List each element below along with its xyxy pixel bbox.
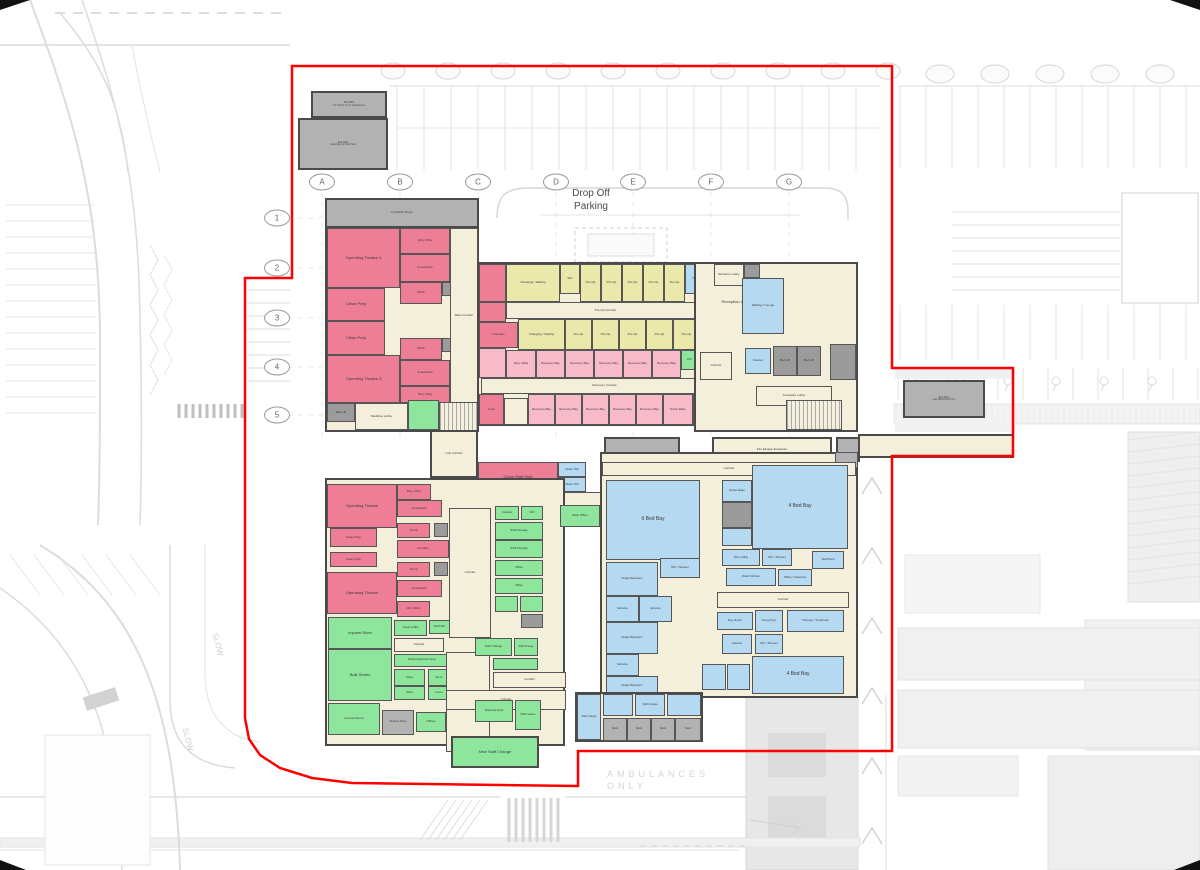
grid-column-C: C [465, 174, 491, 191]
grid-row-5: 5 [264, 407, 290, 424]
room-store: Store [651, 718, 675, 741]
room [744, 264, 760, 278]
floor-plan: EX-002HV Switch & LV TransformerEX-003Ge… [0, 0, 1200, 870]
room-corridor: Corridor [394, 638, 444, 652]
room-clean-prep: Clean Prep [327, 321, 385, 355]
room [830, 344, 856, 380]
room-pre-op-corridor: Pre-Op Corridor [506, 302, 705, 319]
room-anaesthetic: Anaesthetic [397, 580, 442, 597]
room-ensuite: Ensuite [639, 596, 672, 622]
room-anaesthetic: Anaesthetic [400, 254, 450, 282]
room-wc: WC [560, 264, 580, 294]
room-staff-change: Staff Change [495, 522, 543, 540]
site-plan: EX-002HV Switch & LV TransformerEX-003Ge… [0, 0, 1200, 870]
room-single-bedroom: Single Bedroom [606, 622, 658, 654]
room-ensuite: Ensuite [606, 596, 639, 622]
room-bed-lift: Bed Lift [797, 346, 821, 376]
room-changing-waiting: Changing / Waiting [518, 319, 565, 350]
room-recovery-bay: Recovery Bay [636, 394, 663, 425]
room [495, 596, 518, 612]
room-bulk-stores: Bulk Stores [328, 649, 392, 701]
room-clean-prep: Clean Prep [327, 288, 385, 321]
grid-column-F: F [698, 174, 724, 191]
room-recovery-bay: Recovery Bay [555, 394, 582, 425]
room [479, 348, 506, 378]
room-scrub: Scrub [397, 523, 430, 538]
room [479, 264, 506, 302]
room-therapy-treatment: Therapy / Treatment [787, 610, 844, 632]
room-staff-change: Staff Change [475, 638, 512, 656]
room [727, 664, 750, 690]
room-staff-change: Staff Change [514, 638, 538, 656]
ex-001-gas-manifold-room: EX-001Gas Manifold Room [903, 380, 985, 418]
room-corridor: Corridor [717, 592, 849, 608]
room-new-staff-change: New Staff Change [451, 736, 539, 768]
room-nurse-base: Nurse Base [663, 394, 693, 425]
room-pre-op: Pre-Op [646, 319, 673, 350]
room-store: Store [603, 718, 627, 741]
room-scrub: Scrub [397, 562, 430, 577]
room-staff-change: Staff Change [635, 694, 665, 716]
grid-row-2: 2 [264, 260, 290, 277]
room-pre-op: Pre-Op [565, 319, 592, 350]
grid-row-4: 4 [264, 359, 290, 376]
room [504, 398, 528, 425]
room-wc-shower: WC / Shower [660, 558, 700, 578]
room-implant-store: Implant Store [328, 617, 392, 649]
grid-column-B: B [387, 174, 413, 191]
room-services-room: Services Room [382, 710, 414, 735]
room-staff-rest: Staff Rest [812, 551, 844, 569]
room-4-bed-bay: 4 Bed Bay [752, 465, 848, 549]
room-operating-theatre: Operating Theatre [327, 484, 397, 528]
room-clean-utility: Clean Utility [394, 620, 427, 636]
room-staff-wc: Staff WC [429, 620, 450, 634]
room-exit-bay: Exit Bay [397, 540, 449, 558]
stairs [439, 402, 478, 432]
room-dirty-utility: Dirty Utility [397, 601, 430, 617]
ambulances-only-label: AMBULANCES ONLY [607, 769, 709, 792]
room [434, 562, 448, 576]
grid-column-E: E [620, 174, 646, 191]
room-store: Store [675, 718, 701, 741]
room-pre-op: Pre-Op [664, 264, 685, 302]
ambulances-line2: ONLY [607, 781, 709, 793]
grid-column-G: G [776, 174, 802, 191]
room-operating-theatre-3: Operating Theatre 3 [327, 355, 400, 403]
room-dirty-utility: Dirty Utility [397, 484, 431, 500]
room-pre-op: Pre-Op [619, 319, 646, 350]
room-dirty-utility: Dirty Utility [506, 350, 536, 378]
room-offices: Offices [416, 712, 446, 732]
room-recovery-bay: Recovery Bay [528, 394, 555, 425]
room-lv-switch-room: LV Switch Room [325, 198, 479, 228]
room-mobile-equipment-store: Mobile Equipment Store [394, 654, 450, 667]
room [702, 664, 726, 690]
room-pre-op: Pre-Op [622, 264, 643, 302]
link-corridor: Link Corridor [430, 430, 478, 478]
room-staff-lockers: Staff Lockers [515, 700, 541, 730]
room [667, 694, 701, 716]
room [722, 502, 752, 528]
grid-column-D: D [543, 174, 569, 191]
room-nurse-base: Nurse Base [722, 480, 752, 502]
room-single-bedroom: Single Bedroom [606, 562, 658, 596]
grid-row-3: 3 [264, 310, 290, 327]
room-scrub: Scrub [400, 338, 442, 360]
link-corridor-east [858, 434, 1014, 458]
room-recovery-bay: Recovery Bay [594, 350, 623, 378]
room-office: Office [495, 578, 543, 594]
room-interview: Interview [479, 322, 518, 348]
drop-off-line2: Parking [548, 201, 634, 214]
room-store: Store [394, 669, 425, 686]
room-medicine-lobby: Medicine Lobby [355, 403, 408, 430]
room-pre-op: Pre-Op [592, 319, 619, 350]
grid-row-1: 1 [264, 210, 290, 227]
room-day-room: Day Room [717, 612, 753, 630]
room [479, 302, 506, 322]
room-4-bed-bay: 4 Bed Bay [752, 656, 844, 694]
room-visitor-wc: Visitor WC [558, 462, 586, 477]
room-anaesthetic: Anaesthetic [397, 500, 442, 517]
room-cleaner: Cleaner [722, 634, 752, 654]
room-pre-op: Pre-Op [643, 264, 664, 302]
room-corridor: Corridor [700, 352, 732, 380]
room [722, 528, 752, 546]
room-ensuite: Ensuite [606, 654, 639, 676]
room-staff-change: Staff Change [577, 694, 601, 740]
room-drug-prep: Drug Prep [755, 610, 783, 632]
room-recovery-bay: Recovery Bay [536, 350, 565, 378]
room-operating-theatre-4: Operating Theatre 4 [327, 228, 400, 288]
room-cleaner: Cleaner [495, 506, 519, 520]
room [493, 658, 538, 670]
room-office: Office [495, 560, 543, 576]
room-recovery-bay: Recovery Bay [565, 350, 594, 378]
ex-003-generator-fuel-tank: EX-003Generator & Fuel Tank [298, 118, 388, 170]
room-entrance-lobby: Entrance Lobby [714, 264, 744, 286]
room-wc-shower: WC / Shower [755, 634, 783, 654]
room-recovery-bay: Recovery Bay [623, 350, 652, 378]
room-office-interview: Office / Interview [778, 569, 812, 586]
room-scrub: Scrub [400, 282, 442, 304]
room-bed-lift: Bed Lift [773, 346, 797, 376]
room [603, 694, 633, 716]
room-store: Store [394, 686, 425, 700]
ambulances-line1: AMBULANCES [607, 769, 709, 781]
stairs [786, 400, 842, 430]
room-staff-change: Staff Change [495, 540, 543, 558]
room-dirty-utility: Dirty Utility [722, 549, 760, 566]
room-clean-prep: Clean Prep [330, 552, 377, 567]
room [434, 523, 448, 537]
room-6-bed-bay: 6 Bed Bay [606, 480, 700, 560]
room-pre-op: Pre-Op [580, 264, 601, 302]
room [520, 596, 543, 612]
room-wc: WC [521, 506, 543, 520]
room-wc-shower: WC / Shower [762, 549, 792, 566]
room-back-office: Back Office [560, 505, 600, 527]
room-disposal-hold: Disposal Hold [475, 700, 513, 722]
room-anaesthetic: Anaesthetic [400, 360, 450, 386]
room-linen: Linen [479, 394, 504, 425]
room-main-corridor: Main Corridor [450, 228, 478, 404]
room-ward-kitchen: Ward Kitchen [726, 568, 776, 586]
room-bed-lift: Bed Lift [327, 403, 355, 422]
room-pre-op: Pre-Op [601, 264, 622, 302]
room-recovery-bay: Recovery Bay [609, 394, 636, 425]
drop-off-parking-label: Drop Off Parking [548, 188, 634, 213]
grid-column-A: A [309, 174, 335, 191]
room [521, 614, 543, 628]
room-ground-stores: Ground Stores [328, 703, 380, 735]
room-corridor: Corridor [449, 508, 491, 638]
room-waiting-lounge: Waiting / Lounge [742, 278, 784, 334]
room-recovery-bay: Recovery Bay [652, 350, 681, 378]
room-operating-theatre: Operating Theatre [327, 572, 397, 614]
room-clean-prep: Clean Prep [330, 528, 377, 547]
room-store: Store [627, 718, 651, 741]
room-cleaner: Cleaner [745, 348, 771, 374]
room-recovery-bay: Recovery Bay [582, 394, 609, 425]
room-dirty-utility: Dirty Utility [400, 228, 450, 254]
room [408, 400, 439, 430]
ex-002-hv-switch-lv-transformer: EX-002HV Switch & LV Transformer [311, 91, 387, 118]
room-corridor: Corridor [493, 672, 566, 688]
room-recovery-corridor: Recovery Corridor [481, 378, 728, 394]
room-changing-waiting: Changing / Waiting [506, 264, 560, 302]
